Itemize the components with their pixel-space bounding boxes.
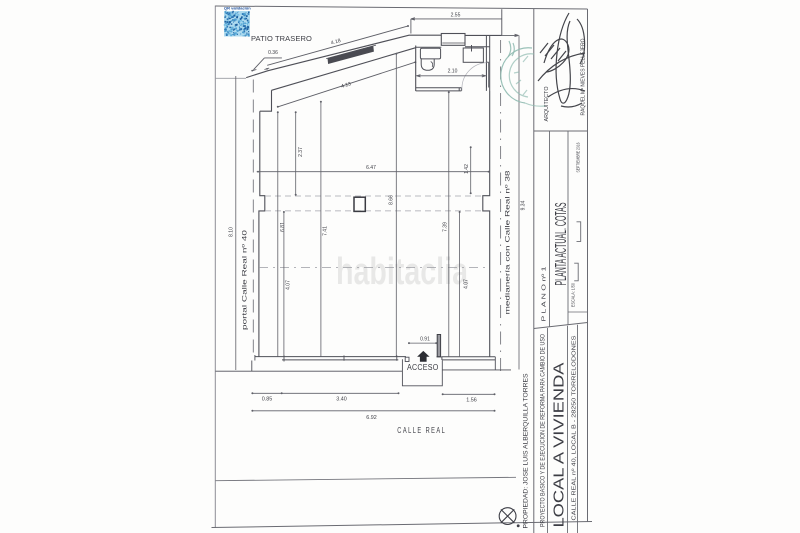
svg-text:8.10: 8.10	[229, 227, 235, 237]
svg-text:1.56: 1.56	[466, 398, 477, 404]
svg-text:CALLE REAL: CALLE REAL	[397, 426, 446, 435]
svg-text:9.34: 9.34	[521, 200, 527, 210]
svg-text:6.81: 6.81	[280, 222, 286, 232]
svg-text:portal Calle Real nº 40: portal Calle Real nº 40	[242, 230, 249, 330]
svg-text:7.39: 7.39	[443, 222, 449, 232]
svg-text:6.47: 6.47	[366, 165, 376, 171]
svg-text:ACCESO: ACCESO	[407, 363, 439, 372]
svg-text:CALLE REAL nº 40, LOCAL B: CALLE REAL nº 40, LOCAL B - 28250 TORREL…	[570, 335, 577, 520]
svg-text:PROYECTO BASICO Y DE EJECUCIO: PROYECTO BASICO Y DE EJECUCION DE REFORM…	[540, 334, 547, 527]
svg-text:8.66: 8.66	[389, 195, 395, 205]
svg-text:4.13: 4.13	[340, 81, 352, 90]
svg-text:7.41: 7.41	[323, 226, 329, 236]
svg-text:6.92: 6.92	[366, 415, 377, 421]
svg-text:PROPIEDAD: JOSE LUIS ALBERQ: PROPIEDAD: JOSE LUIS ALBERQUILLA TORRES	[523, 374, 530, 529]
svg-text:3.40: 3.40	[336, 397, 347, 403]
svg-text:2.10: 2.10	[448, 69, 458, 75]
svg-text:PLANTA ACTUAL. COTAS: PLANTA ACTUAL. COTAS	[553, 203, 570, 286]
svg-text:LOCAL A VIVIENDA: LOCAL A VIVIENDA	[551, 363, 568, 528]
svg-text:4.07: 4.07	[464, 279, 470, 289]
svg-text:SEPTIEMBRE 2016: SEPTIEMBRE 2016	[575, 142, 581, 172]
svg-text:2.55: 2.55	[451, 13, 461, 19]
svg-text:0.91: 0.91	[420, 337, 430, 343]
svg-text:ARQUITECTO: ARQUITECTO	[544, 87, 550, 122]
svg-text:QR validación: QR validación	[224, 6, 251, 11]
svg-text:0.36: 0.36	[268, 50, 278, 56]
svg-text:ESCALA: 1/50: ESCALA: 1/50	[570, 283, 575, 307]
svg-text:P L A N O nº 1: P L A N O nº 1	[541, 267, 547, 322]
svg-text:4.07: 4.07	[286, 280, 292, 290]
svg-text:2.37: 2.37	[298, 147, 304, 157]
svg-text:1.42: 1.42	[464, 164, 470, 174]
svg-text:medianería con Calle Real nº 3: medianería con Calle Real nº 38	[505, 170, 512, 315]
svg-text:PATIO TRASERO: PATIO TRASERO	[251, 34, 314, 43]
svg-text:0.85: 0.85	[262, 397, 273, 403]
